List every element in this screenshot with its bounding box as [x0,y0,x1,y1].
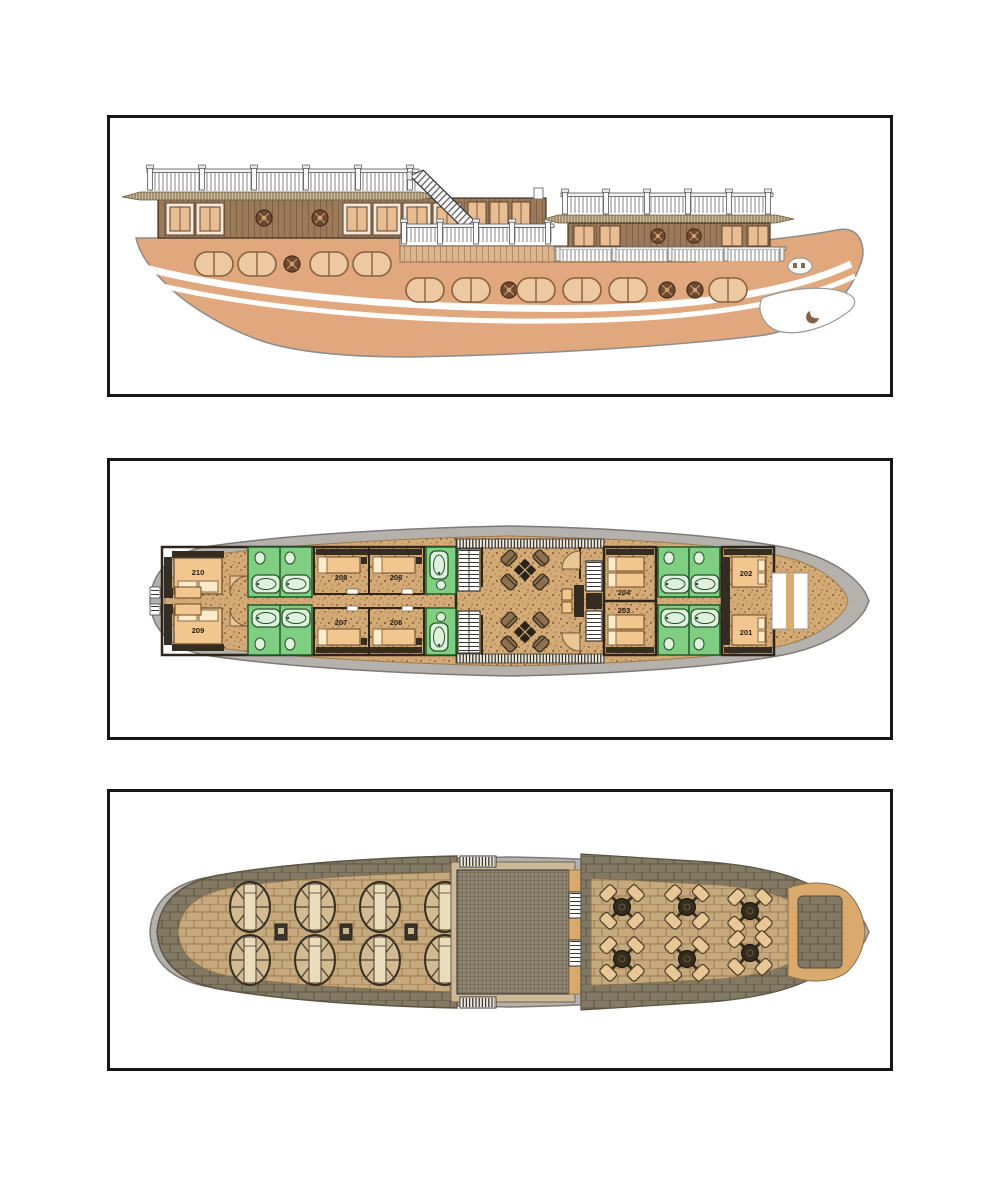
cabin-number: 208 [335,573,348,582]
bathroom-port-forward [658,547,720,597]
side-elevation-drawing [110,118,890,394]
center-roof-skylight [451,856,583,1008]
sun-lounger [295,935,335,985]
hull-windows-lower-row [406,278,747,302]
roof-eave [122,192,440,200]
sun-deck-panel [107,789,893,1071]
sun-lounger [360,882,400,932]
aft-deck-balustrade [554,247,786,261]
bow-platform [772,573,808,629]
cabin-number: 204 [618,588,631,597]
forward-deckhouse [544,189,794,249]
cabin-number: 203 [618,606,631,615]
cabin-number: 206 [390,573,403,582]
cabin-number: 209 [192,626,205,635]
bathroom-starboard-aft [248,605,312,655]
staircase-port [458,549,480,591]
upper-deck-railing [147,165,420,191]
sun-lounger [295,882,335,932]
staircase-forward [586,561,602,641]
cabin-deck-panel: 210 209 [107,458,893,740]
staircase-starboard [458,611,480,653]
sun-lounger [230,882,270,932]
sun-lounger [230,935,270,985]
cabin-deck-drawing: 210 209 [110,461,890,737]
sun-deck-drawing [110,792,890,1068]
cabin-number: 205 [390,618,403,627]
dining-deck [581,854,816,1010]
deck-plan-sheet: 210 209 [0,0,1000,1200]
chimney [534,188,543,199]
bow-deck [788,883,865,981]
sun-lounger [360,935,400,985]
cabin-number: 201 [740,628,753,637]
bathroom-port-aft [248,547,312,597]
cabin-number: 207 [335,618,348,627]
side-elevation-panel [107,115,893,397]
cabin-number: 202 [740,569,753,578]
hull-windows-upper-row [195,252,391,276]
cabin-number: 210 [192,568,205,577]
bathroom-starboard-forward [658,605,720,655]
